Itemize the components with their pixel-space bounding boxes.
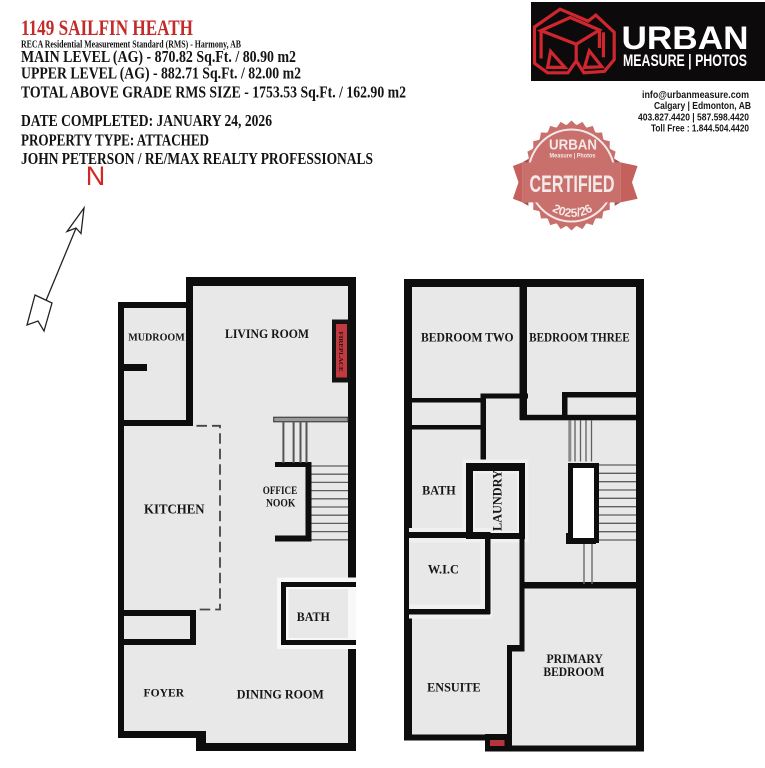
- svg-text:BEDROOM TWO: BEDROOM TWO: [421, 330, 514, 345]
- svg-text:BATH: BATH: [297, 609, 330, 624]
- svg-text:W.I.C: W.I.C: [428, 562, 459, 577]
- svg-text:FOYER: FOYER: [144, 686, 185, 700]
- svg-text:BEDROOM: BEDROOM: [543, 664, 604, 679]
- svg-text:BATH: BATH: [422, 483, 456, 498]
- svg-text:DINING ROOM: DINING ROOM: [237, 688, 324, 702]
- svg-text:N: N: [86, 161, 106, 191]
- svg-text:NOOK: NOOK: [266, 496, 296, 510]
- svg-text:KITCHEN: KITCHEN: [144, 503, 205, 518]
- svg-text:LIVING ROOM: LIVING ROOM: [225, 326, 309, 341]
- svg-text:FIREPLACE: FIREPLACE: [337, 332, 343, 372]
- svg-text:MUDROOM: MUDROOM: [128, 332, 185, 343]
- svg-text:ENSUITE: ENSUITE: [427, 680, 481, 695]
- svg-text:LAUNDRY: LAUNDRY: [490, 470, 504, 531]
- svg-text:BEDROOM THREE: BEDROOM THREE: [529, 330, 630, 345]
